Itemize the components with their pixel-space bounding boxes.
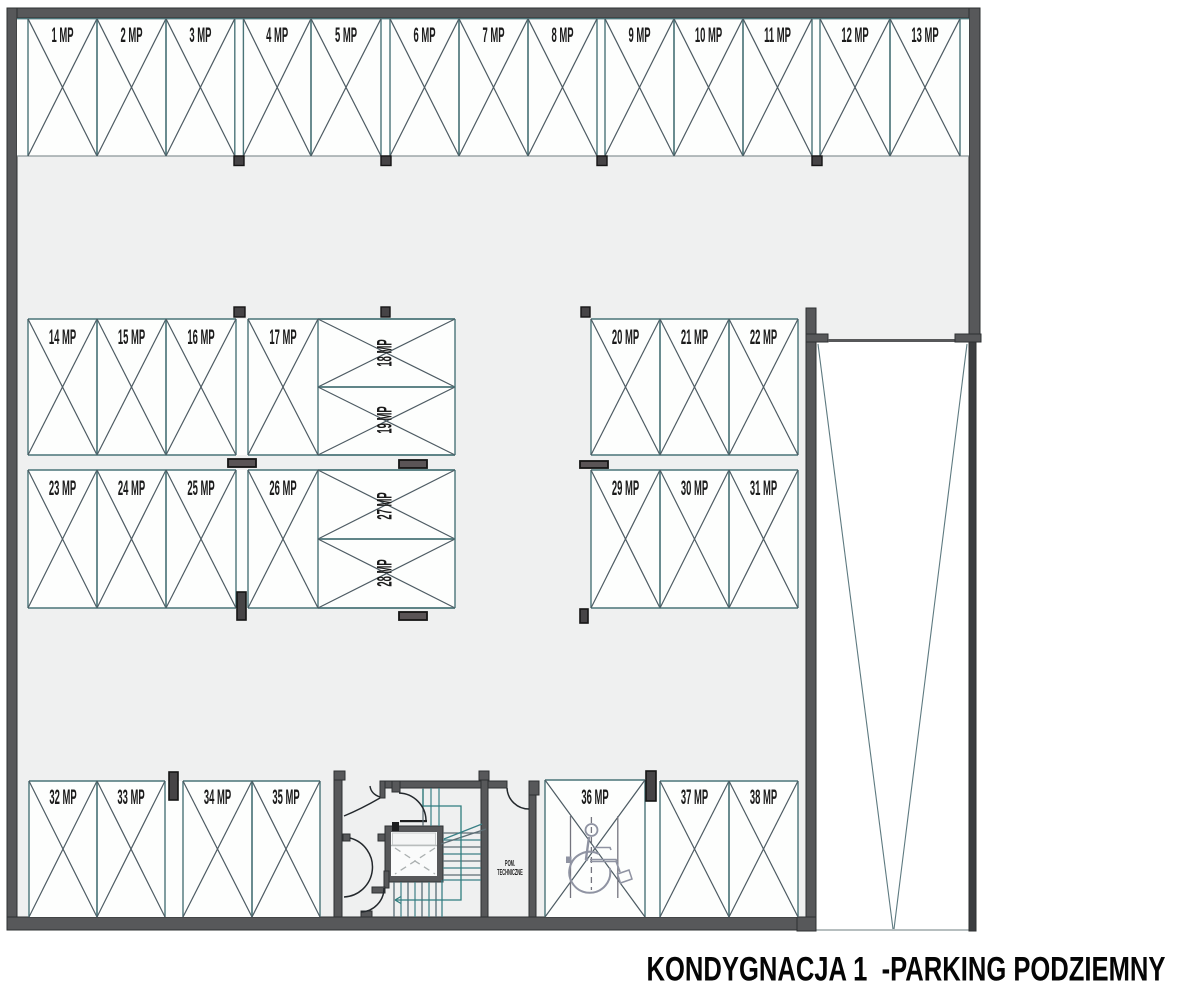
svg-text:11 MP: 11 MP bbox=[764, 24, 791, 47]
svg-text:28 MP: 28 MP bbox=[373, 559, 396, 586]
svg-text:9 MP: 9 MP bbox=[628, 24, 650, 47]
svg-text:POM.: POM. bbox=[505, 860, 515, 869]
svg-text:22 MP: 22 MP bbox=[750, 326, 777, 349]
svg-text:16 MP: 16 MP bbox=[187, 326, 214, 349]
svg-text:34 MP: 34 MP bbox=[204, 786, 231, 809]
svg-text:24 MP: 24 MP bbox=[118, 477, 145, 500]
svg-text:31 MP: 31 MP bbox=[750, 477, 777, 500]
svg-text:21 MP: 21 MP bbox=[681, 326, 708, 349]
svg-text:35 MP: 35 MP bbox=[272, 786, 299, 809]
svg-text:29 MP: 29 MP bbox=[612, 477, 639, 500]
svg-text:30 MP: 30 MP bbox=[681, 477, 708, 500]
svg-text:20 MP: 20 MP bbox=[612, 326, 639, 349]
svg-text:2 MP: 2 MP bbox=[120, 24, 142, 47]
svg-text:5 MP: 5 MP bbox=[335, 24, 357, 47]
svg-text:6 MP: 6 MP bbox=[413, 24, 435, 47]
svg-text:27 MP: 27 MP bbox=[373, 492, 396, 519]
svg-text:37 MP: 37 MP bbox=[681, 786, 708, 809]
svg-text:4 MP: 4 MP bbox=[266, 24, 288, 47]
svg-text:7 MP: 7 MP bbox=[482, 24, 504, 47]
svg-text:KONDYGNACJA 1 -PARKING PODZIE: KONDYGNACJA 1 -PARKING PODZIEMNY bbox=[647, 951, 1166, 988]
svg-text:19 MP: 19 MP bbox=[373, 406, 396, 433]
svg-text:18 MP: 18 MP bbox=[373, 339, 396, 366]
svg-text:12 MP: 12 MP bbox=[841, 24, 868, 47]
svg-text:17 MP: 17 MP bbox=[269, 326, 296, 349]
svg-text:13 MP: 13 MP bbox=[911, 24, 938, 47]
svg-text:10 MP: 10 MP bbox=[695, 24, 722, 47]
svg-text:15 MP: 15 MP bbox=[118, 326, 145, 349]
svg-text:38 MP: 38 MP bbox=[750, 786, 777, 809]
svg-text:36 MP: 36 MP bbox=[581, 786, 608, 809]
svg-text:14 MP: 14 MP bbox=[49, 326, 76, 349]
svg-text:TECHNICZNE: TECHNICZNE bbox=[497, 869, 523, 878]
svg-text:23 MP: 23 MP bbox=[49, 477, 76, 500]
svg-text:8 MP: 8 MP bbox=[551, 24, 573, 47]
svg-text:3 MP: 3 MP bbox=[189, 24, 211, 47]
svg-text:33 MP: 33 MP bbox=[117, 786, 144, 809]
svg-text:25 MP: 25 MP bbox=[187, 477, 214, 500]
svg-text:1 MP: 1 MP bbox=[51, 24, 73, 47]
svg-text:26 MP: 26 MP bbox=[269, 477, 296, 500]
svg-text:32 MP: 32 MP bbox=[49, 786, 76, 809]
